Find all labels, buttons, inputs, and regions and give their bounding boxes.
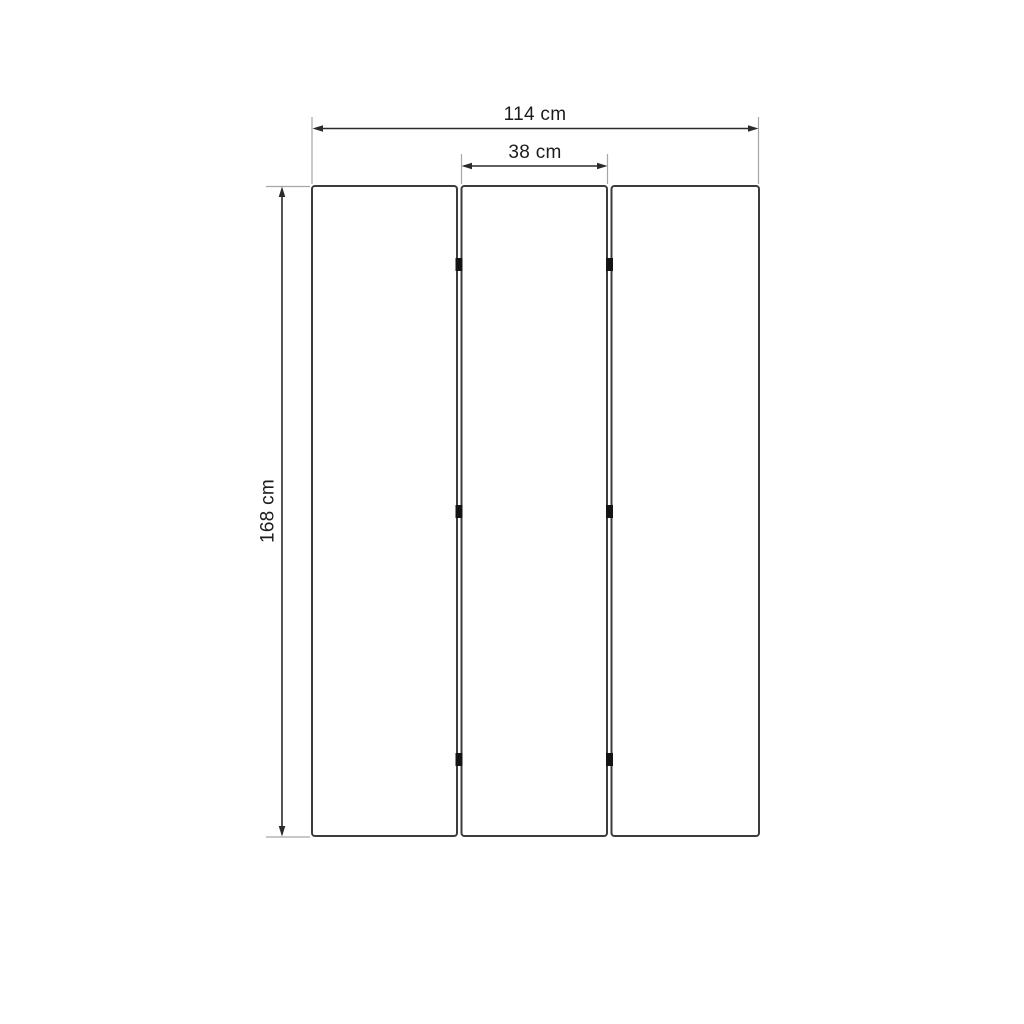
panels	[312, 186, 759, 836]
dimension-panel-width: 38 cm	[462, 142, 608, 169]
panel-width-label: 38 cm	[508, 142, 561, 163]
height-label: 168 cm	[258, 479, 279, 543]
arrow-left-icon	[313, 125, 324, 132]
arrow-left-icon	[462, 163, 473, 170]
hinge-left-top	[456, 258, 463, 271]
diagram-svg: 114 cm 38 cm 168 cm	[0, 0, 1024, 1024]
panel-right	[612, 186, 760, 836]
hinge-right-middle	[606, 505, 613, 518]
arrow-up-icon	[279, 187, 286, 198]
panel-middle	[462, 186, 608, 836]
dimension-height: 168 cm	[258, 187, 286, 837]
arrow-right-icon	[748, 125, 759, 132]
total-width-label: 114 cm	[504, 104, 567, 125]
dimension-total-width: 114 cm	[313, 104, 759, 132]
arrow-down-icon	[279, 826, 286, 837]
hinge-right-top	[606, 258, 613, 271]
hinge-left-bottom	[456, 753, 463, 766]
hinge-right-bottom	[606, 753, 613, 766]
folding-screen-dimension-diagram: 114 cm 38 cm 168 cm	[0, 0, 1024, 1024]
panel-left	[312, 186, 457, 836]
hinge-left-middle	[456, 505, 463, 518]
arrow-right-icon	[597, 163, 608, 170]
